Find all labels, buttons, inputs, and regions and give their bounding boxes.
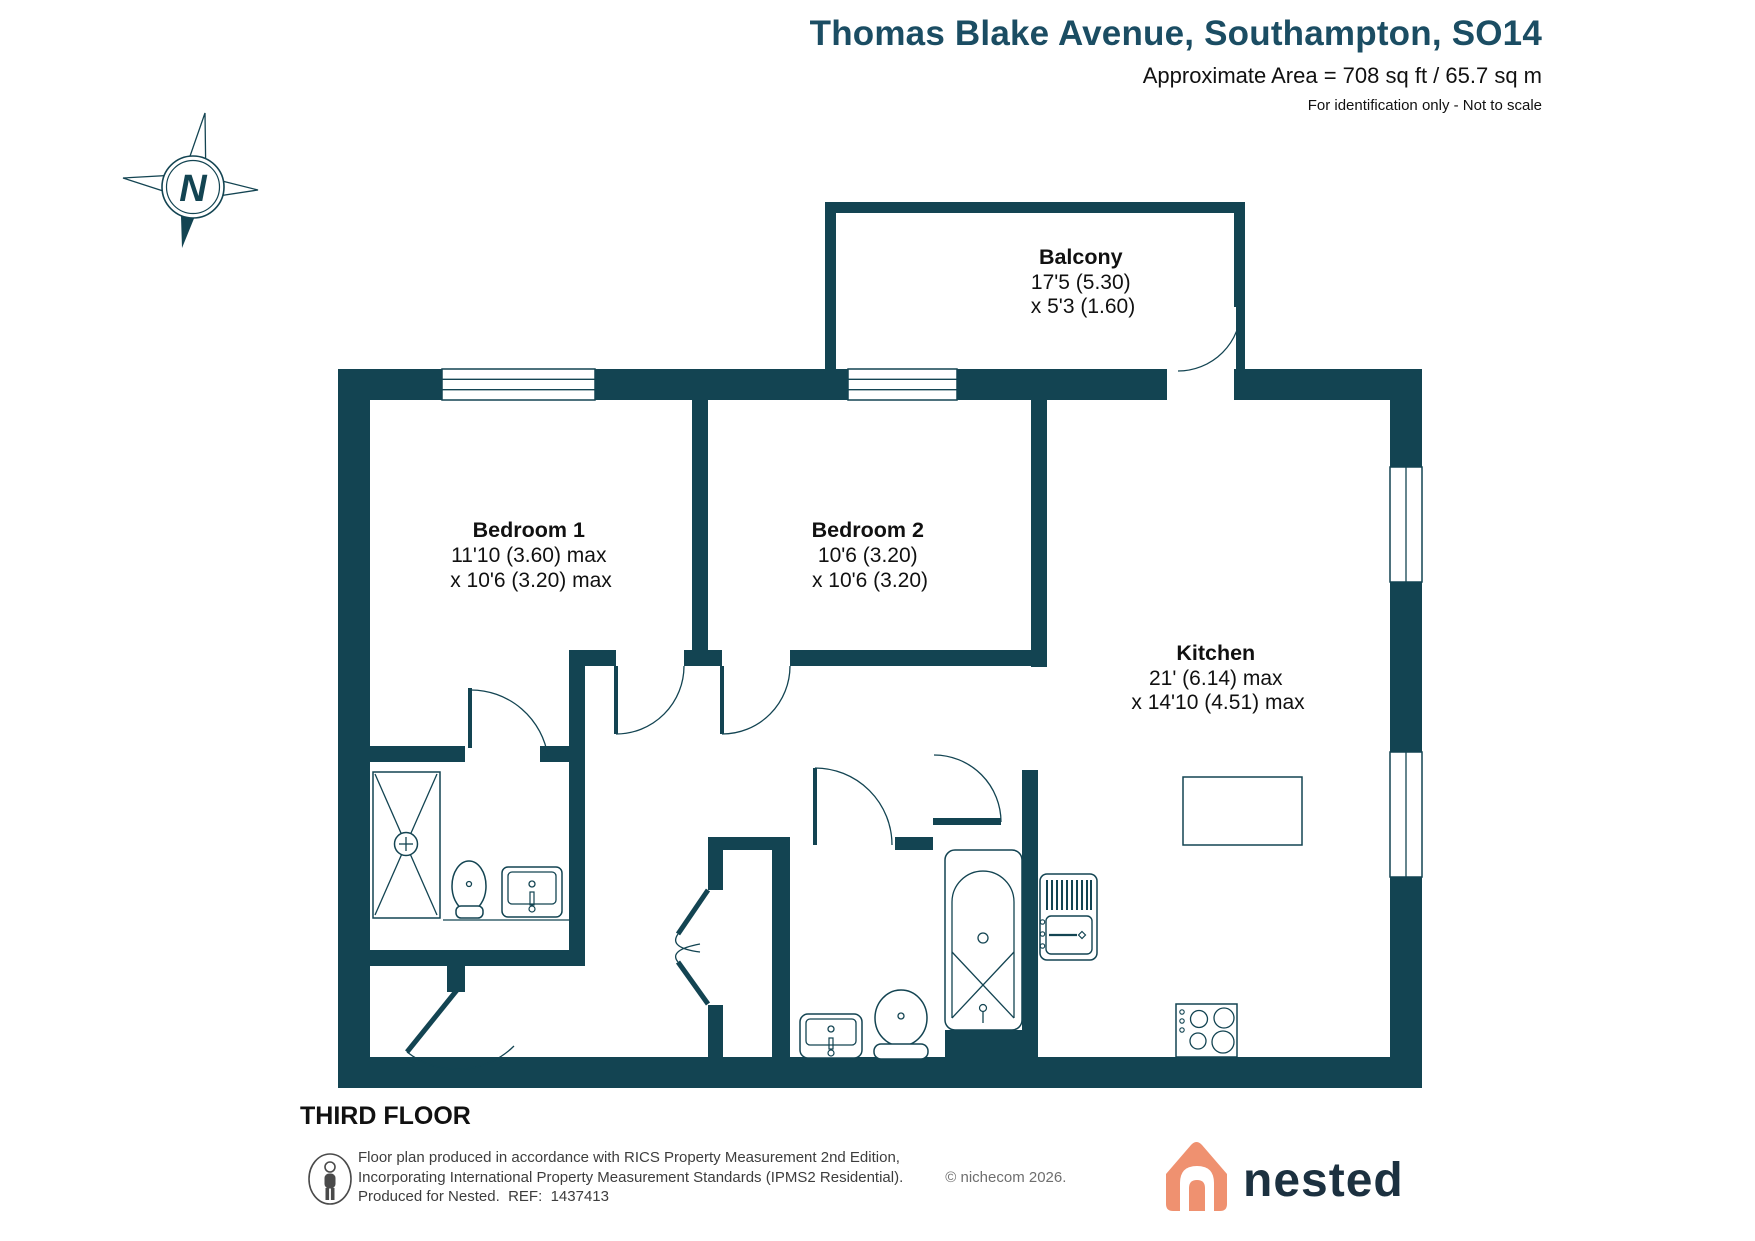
- bedroom2-window: [848, 369, 957, 400]
- bathroom-toilet-icon: [874, 990, 928, 1059]
- bedroom1-label: Bedroom 1 11'10 (3.60) max x 10'6 (3.20)…: [450, 518, 612, 592]
- ensuite-basin-icon: [502, 867, 562, 917]
- hob-icon: [1176, 1004, 1237, 1057]
- bedroom2-label: Bedroom 2 10'6 (3.20) x 10'6 (3.20): [812, 518, 929, 592]
- bathroom-basin-icon: [800, 1014, 862, 1058]
- bath-icon: [945, 850, 1022, 1030]
- bathroom-door: [813, 768, 892, 845]
- balcony-label: Balcony 17'5 (5.30) x 5'3 (1.60): [1031, 245, 1135, 318]
- ensuite-toilet-icon: [452, 861, 486, 918]
- balcony-door: [1178, 305, 1245, 371]
- bedroom1-window: [442, 369, 595, 400]
- kitchen-label: Kitchen 21' (6.14) max x 14'10 (4.51) ma…: [1131, 641, 1305, 714]
- bedroom1-door: [614, 666, 684, 734]
- kitchen-window-upper: [1390, 467, 1422, 582]
- nested-logo: nested: [1158, 1130, 1458, 1230]
- floor-name-label: THIRD FLOOR: [300, 1102, 471, 1131]
- kitchen-sink-unit-icon: [1040, 874, 1097, 960]
- ensuite-door: [468, 688, 548, 757]
- outer-walls: [338, 369, 1422, 1088]
- copyright-text: © nichecom 2026.: [945, 1168, 1066, 1188]
- nested-wordmark: nested: [1243, 1154, 1404, 1207]
- kitchen-window-lower: [1390, 752, 1422, 877]
- floorplan-page: Thomas Blake Avenue, Southampton, SO14 A…: [0, 0, 1755, 1241]
- kitchen-door: [933, 755, 1001, 825]
- footer-line-2: Incorporating International Property Mea…: [358, 1168, 903, 1188]
- compass-rose-icon: N: [123, 113, 258, 248]
- footer-line-1: Floor plan produced in accordance with R…: [358, 1148, 1066, 1168]
- shower-icon: [373, 772, 440, 918]
- footer-line-3: Produced for Nested. REF: 1437413: [358, 1187, 1066, 1207]
- floor-plan-drawing: N: [0, 0, 1755, 1241]
- kitchen-island: [1183, 777, 1302, 845]
- kitchen-fixtures: [1040, 777, 1302, 1057]
- cupboard-bifold-door: [676, 890, 708, 1004]
- person-icon: [304, 1150, 356, 1208]
- bedroom2-door: [720, 666, 790, 734]
- nested-house-icon: [1166, 1142, 1227, 1211]
- bathroom-fixtures: [800, 850, 1022, 1059]
- footer-disclaimer: Floor plan produced in accordance with R…: [358, 1148, 1066, 1207]
- ensuite-fixtures: [373, 772, 569, 920]
- compass-north-label: N: [179, 168, 208, 210]
